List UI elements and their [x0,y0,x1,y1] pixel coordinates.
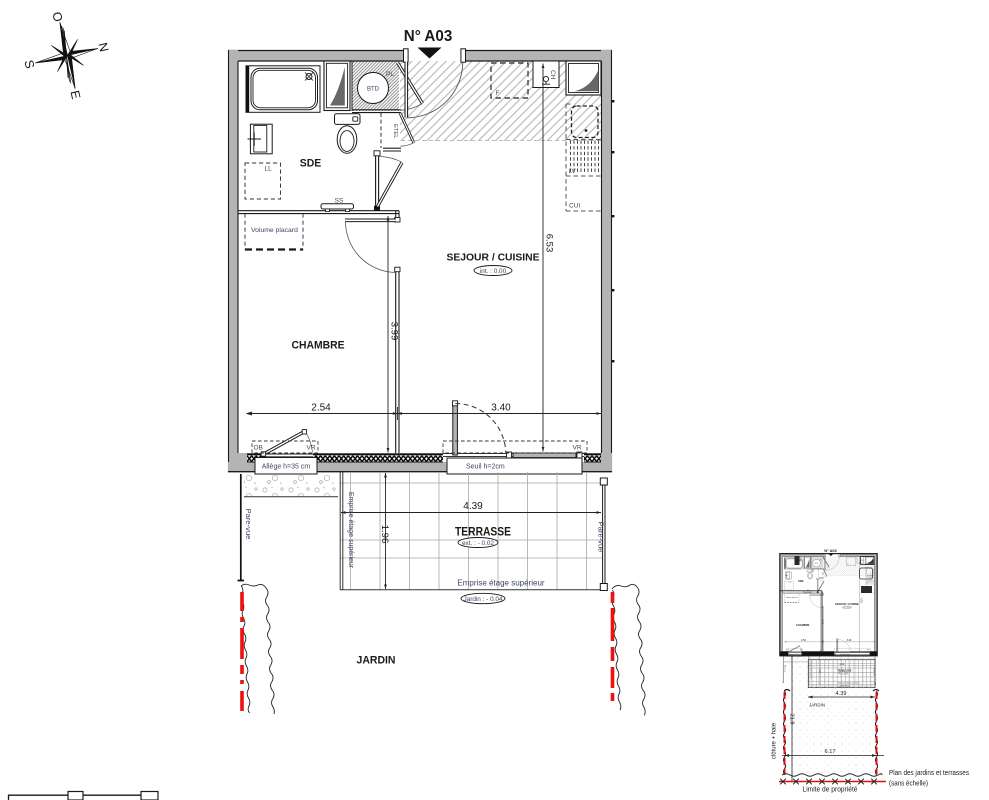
svg-text:JARDIN: JARDIN [357,655,396,667]
svg-text:Plan des jardins et terrasses: Plan des jardins et terrasses [889,768,969,777]
svg-text:21.9: 21.9 [789,714,795,725]
svg-text:Emprise étage supérieur: Emprise étage supérieur [457,579,544,588]
svg-text:Pare-vue: Pare-vue [597,522,606,553]
svg-text:CHAMBRE: CHAMBRE [292,340,345,352]
svg-text:F: F [496,90,500,97]
svg-text:VR: VR [573,445,582,452]
svg-text:CH: CH [549,70,556,80]
svg-text:Allège h=35 cm: Allège h=35 cm [262,464,311,471]
svg-text:SS: SS [335,198,344,205]
svg-text:Emprise étage supérieur: Emprise étage supérieur [347,492,354,569]
svg-text:int. : 0.00: int. : 0.00 [480,268,507,275]
svg-text:Jardin : - 0.04: Jardin : - 0.04 [463,596,503,603]
svg-text:(sans échelle): (sans échelle) [889,779,928,788]
svg-text:E: E [67,89,83,100]
svg-text:4.39: 4.39 [463,501,483,512]
svg-text:SDE: SDE [300,158,322,170]
svg-text:6.17: 6.17 [825,749,836,755]
svg-text:SEJOUR / CUISINE: SEJOUR / CUISINE [447,252,540,264]
svg-text:clôture + haie: clôture + haie [772,722,778,759]
svg-text:PL.: PL. [386,71,396,78]
svg-text:1.96: 1.96 [379,525,390,544]
svg-text:LL: LL [265,166,273,173]
svg-text:OB: OB [254,445,263,452]
svg-text:VR: VR [307,445,316,452]
svg-text:3.99: 3.99 [389,322,400,341]
svg-text:Limite de propriété: Limite de propriété [803,787,858,794]
svg-text:2.54: 2.54 [311,403,331,414]
svg-text:JARDIN: JARDIN [809,703,825,708]
svg-text:Seuil h=2cm: Seuil h=2cm [466,464,505,471]
svg-text:N° A03: N° A03 [404,28,453,45]
svg-text:4.39: 4.39 [836,691,847,697]
svg-text:O: O [49,10,65,23]
svg-text:LV: LV [569,168,577,175]
svg-text:S: S [21,59,37,70]
svg-text:TERRASSE: TERRASSE [455,527,511,539]
svg-text:ext. : - 0.02: ext. : - 0.02 [462,540,494,547]
svg-text:CUI: CUI [569,203,580,210]
svg-text:ETEL: ETEL [392,124,398,139]
svg-text:Pare-vue: Pare-vue [244,509,253,540]
svg-text:N: N [95,41,111,53]
svg-text:BTD: BTD [367,87,380,93]
svg-text:6.53: 6.53 [544,234,555,253]
svg-text:Volume placard: Volume placard [251,227,298,234]
svg-text:3.40: 3.40 [491,403,511,414]
